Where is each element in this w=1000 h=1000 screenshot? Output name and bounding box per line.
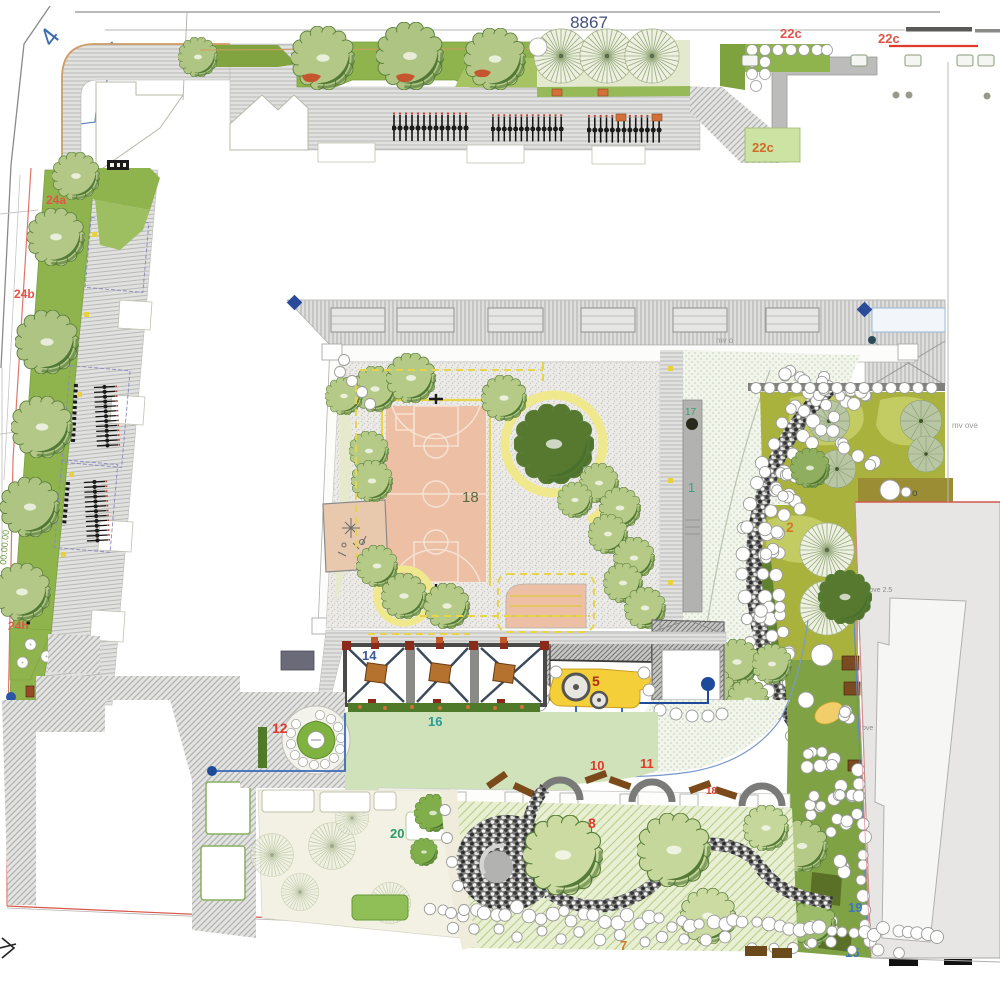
svg-text:2: 2 (786, 519, 794, 535)
svg-text:11: 11 (640, 756, 654, 771)
svg-text:16: 16 (428, 714, 442, 729)
svg-text:5: 5 (592, 673, 600, 689)
svg-text:7: 7 (620, 938, 627, 953)
svg-text:10: 10 (590, 758, 604, 773)
svg-text:22c: 22c (878, 31, 900, 46)
svg-text:ove: ove (862, 725, 873, 732)
svg-text:o: o (912, 488, 918, 499)
svg-text:14: 14 (362, 648, 377, 663)
svg-text:19: 19 (848, 900, 862, 915)
svg-text:17: 17 (685, 407, 697, 418)
svg-text:8: 8 (588, 815, 596, 831)
svg-text:mv ove: mv ove (952, 421, 978, 430)
svg-text:22c: 22c (780, 26, 802, 41)
svg-text:20: 20 (390, 826, 404, 841)
svg-text:mv o: mv o (716, 336, 734, 345)
svg-text:22c: 22c (752, 140, 774, 155)
svg-text:18: 18 (462, 489, 479, 506)
svg-text:12: 12 (272, 720, 288, 736)
svg-text:24b: 24b (14, 287, 35, 301)
svg-text:18: 18 (706, 786, 718, 797)
svg-text:1: 1 (688, 480, 695, 495)
